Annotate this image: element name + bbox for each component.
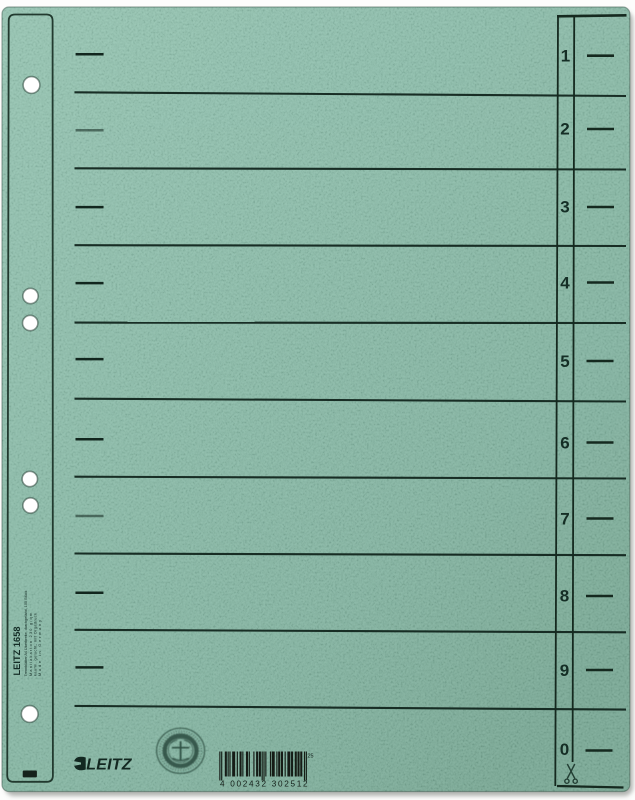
svg-text:5: 5: [560, 352, 569, 371]
svg-text:6: 6: [560, 434, 569, 453]
svg-text:LEITZ: LEITZ: [86, 757, 132, 774]
svg-text:9: 9: [560, 661, 569, 680]
svg-text:4: 4: [560, 274, 570, 293]
svg-text:3: 3: [560, 198, 569, 217]
svg-text:Manilakarton 230 g/qm: Manilakarton 230 g/qm: [29, 613, 33, 676]
svg-text:1: 1: [561, 47, 570, 66]
svg-text:0: 0: [560, 740, 569, 759]
svg-text:2: 2: [560, 120, 569, 139]
svg-text:kaufm. gelocht, mit Orgadruck: kaufm. gelocht, mit Orgadruck: [34, 613, 38, 676]
svg-text:7: 7: [560, 510, 569, 529]
svg-text:LEITZ 1658: LEITZ 1658: [12, 627, 22, 676]
svg-text:8: 8: [560, 587, 569, 606]
svg-text:Trennblätter A4 Überbreite, du: Trennblätter A4 Überbreite, durchgefärbt…: [24, 590, 28, 676]
svg-text:4 002432 302512: 4 002432 302512: [220, 780, 308, 789]
svg-text:25: 25: [308, 754, 314, 760]
